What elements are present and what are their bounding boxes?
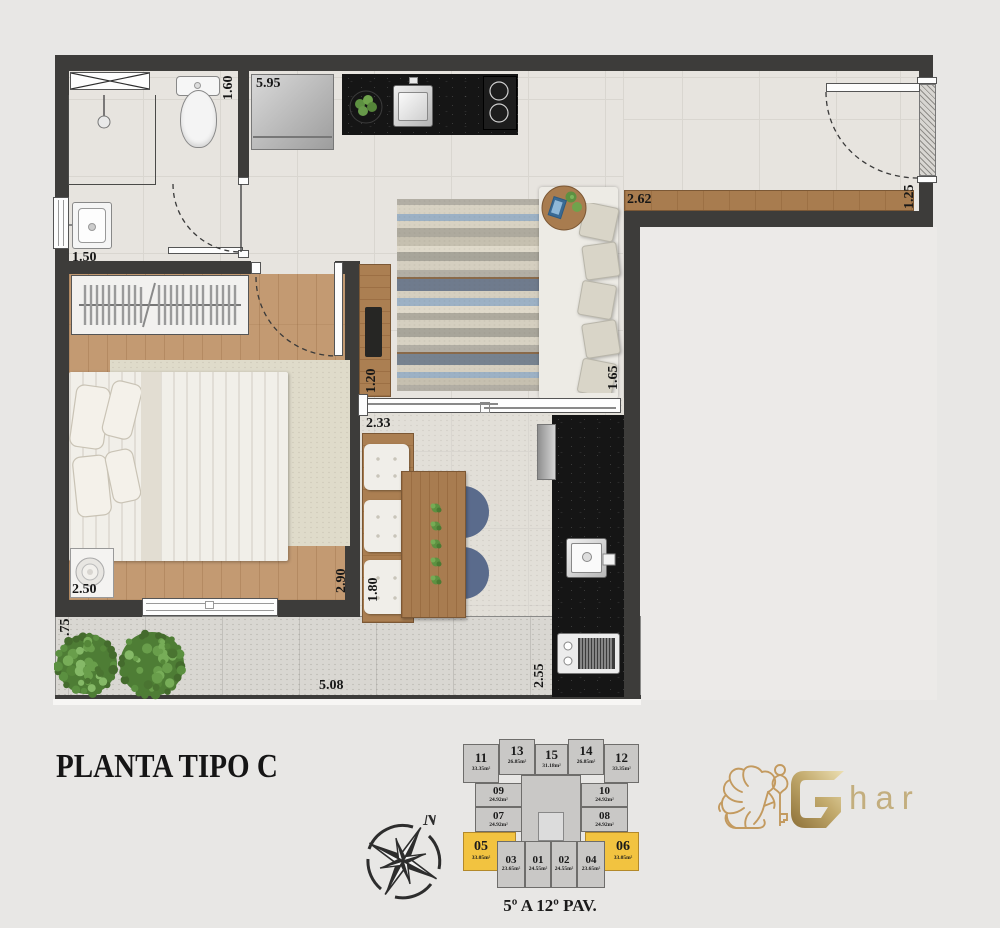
svg-text:N: N: [422, 815, 439, 830]
